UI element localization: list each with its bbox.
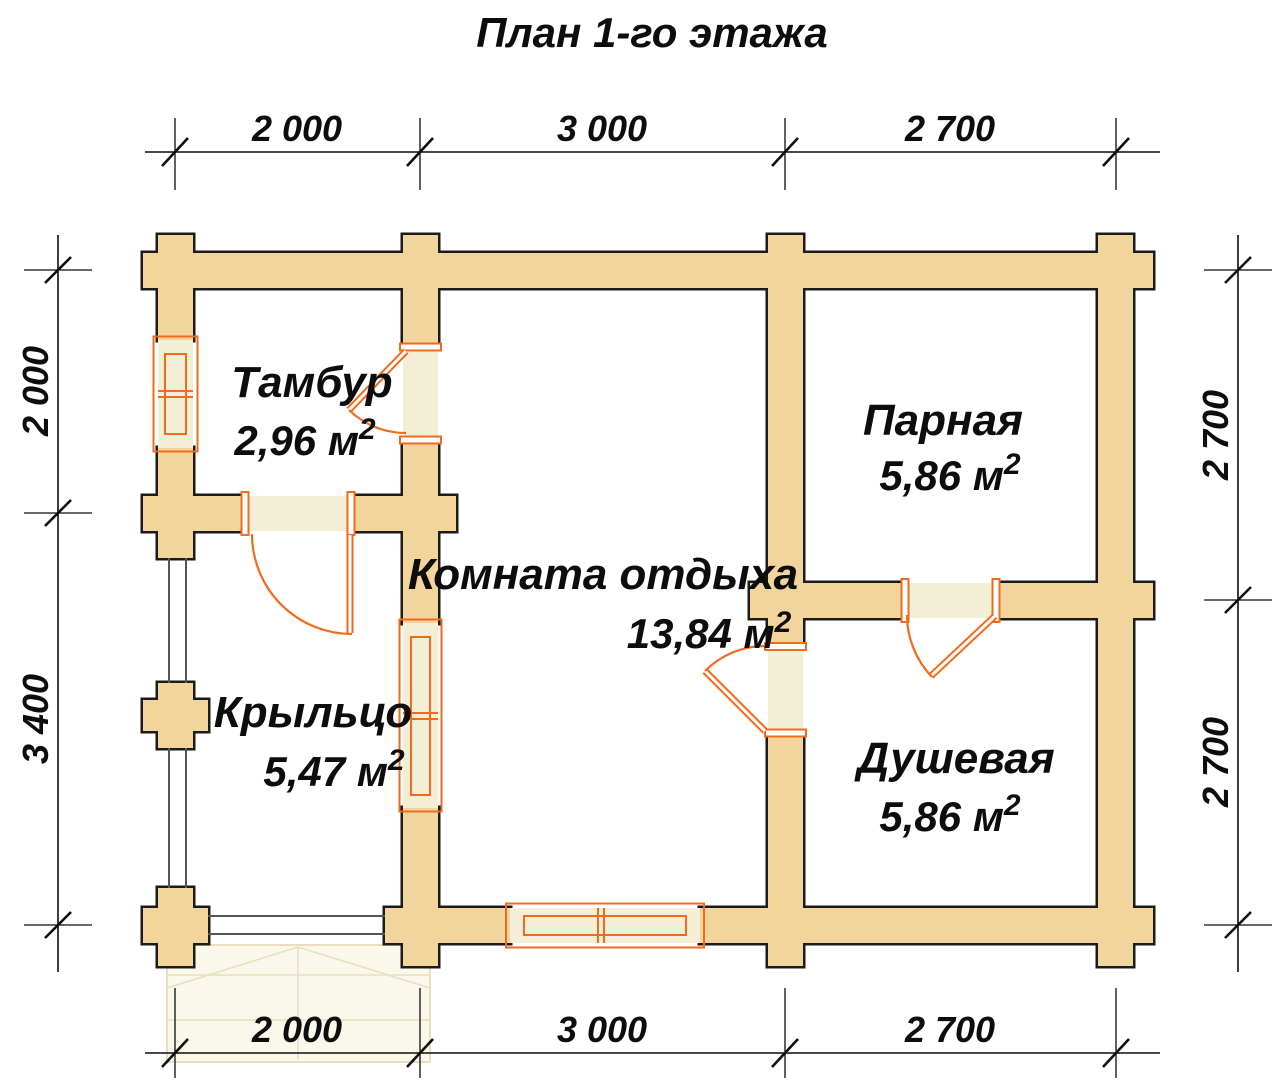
door-leaf-inner: [705, 671, 765, 731]
page-title: План 1-го этажа: [476, 9, 827, 56]
room-name: Душевая: [853, 734, 1054, 783]
room-name: Тамбур: [231, 358, 392, 407]
room-label-steam-room: Парная 5,86 м2: [863, 396, 1023, 499]
dim-label-top-2: 3 000: [557, 108, 647, 149]
room-label-shower: Душевая 5,86 м2: [853, 734, 1054, 840]
window-bottom-wall: [506, 904, 704, 948]
door-jamb: [348, 492, 355, 535]
door-leaf-inner: [931, 616, 995, 676]
door-steam-to-shower: [902, 579, 1000, 677]
room-label-porch: Крыльцо 5,47 м2: [214, 688, 413, 795]
room-name: Крыльцо: [214, 688, 413, 737]
dim-label-right-1: 2 700: [1195, 390, 1236, 481]
room-area: 2,96 м2: [233, 413, 375, 464]
dim-label-bottom-3: 2 700: [904, 1009, 995, 1050]
door-lounge-to-shower: [705, 643, 806, 737]
wall-fill-layer: [143, 235, 1153, 966]
walls-and-posts: [143, 235, 1153, 966]
door-jamb: [400, 344, 441, 351]
dimension-line-left: 2 000 3 400: [15, 235, 92, 972]
door-threshold: [403, 347, 438, 440]
room-label-lounge: Комната отдыха 13,84 м2: [408, 550, 798, 657]
room-area: 13,84 м2: [627, 606, 792, 657]
door-threshold: [245, 496, 352, 531]
door-threshold: [768, 651, 803, 729]
door-entrance-porch: [242, 492, 355, 634]
room-area: 5,86 м2: [879, 789, 1020, 840]
dim-label-bottom-2: 3 000: [557, 1009, 647, 1050]
dim-label-top-1: 2 000: [251, 108, 342, 149]
floor-plan-page: 2 000 3 000 2 700 2 000 3 000 2 700 2 00…: [0, 0, 1280, 1083]
door-threshold: [905, 583, 997, 618]
door-jamb: [242, 492, 249, 535]
dim-label-right-2: 2 700: [1195, 717, 1236, 808]
floor-plan-drawing: 2 000 3 000 2 700 2 000 3 000 2 700 2 00…: [0, 0, 1280, 1083]
room-area: 5,86 м2: [879, 448, 1020, 499]
room-label-tambour: Тамбур 2,96 м2: [231, 358, 392, 464]
window-glass: [158, 340, 193, 448]
dim-label-top-3: 2 700: [904, 108, 995, 149]
door-jamb: [765, 730, 806, 737]
room-name: Комната отдыха: [408, 550, 798, 599]
room-name: Парная: [863, 396, 1023, 445]
dim-label-left-1: 2 000: [15, 346, 56, 437]
dim-label-left-2: 3 400: [15, 674, 56, 764]
dim-label-bottom-1: 2 000: [251, 1009, 342, 1050]
room-area: 5,47 м2: [263, 744, 404, 795]
door-swing-arc: [907, 615, 932, 677]
door-jamb: [400, 437, 441, 444]
door-swing-arc: [252, 534, 352, 634]
dimension-line-top: 2 000 3 000 2 700: [145, 108, 1160, 190]
dimension-line-right: 2 700 2 700: [1195, 235, 1272, 972]
window-left-wall: [154, 337, 198, 452]
